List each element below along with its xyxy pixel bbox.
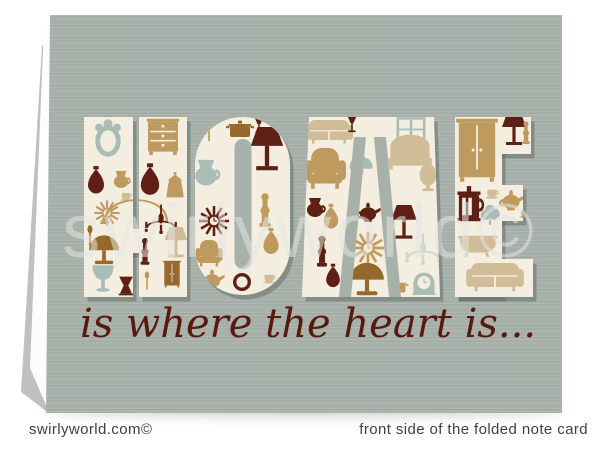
tagline-script-text: is where the heart is...: [80, 301, 536, 347]
wardrobe-icon: [456, 119, 498, 182]
home-lettering-art: swirlyworld© is where the heart is...: [0, 0, 600, 451]
cup-icon: [263, 275, 276, 284]
watermark-text: swirlyworld©: [62, 189, 538, 274]
footer-right-caption: front side of the folded note card: [359, 421, 588, 438]
mirror-icon: [95, 119, 121, 157]
plate-icon: [233, 273, 251, 291]
footer-left-caption: swirlyworld.com©: [29, 421, 152, 438]
chest-icon: [147, 119, 179, 155]
card-mockup-stage: swirlyworld© is where the heart is... sw…: [0, 0, 600, 451]
